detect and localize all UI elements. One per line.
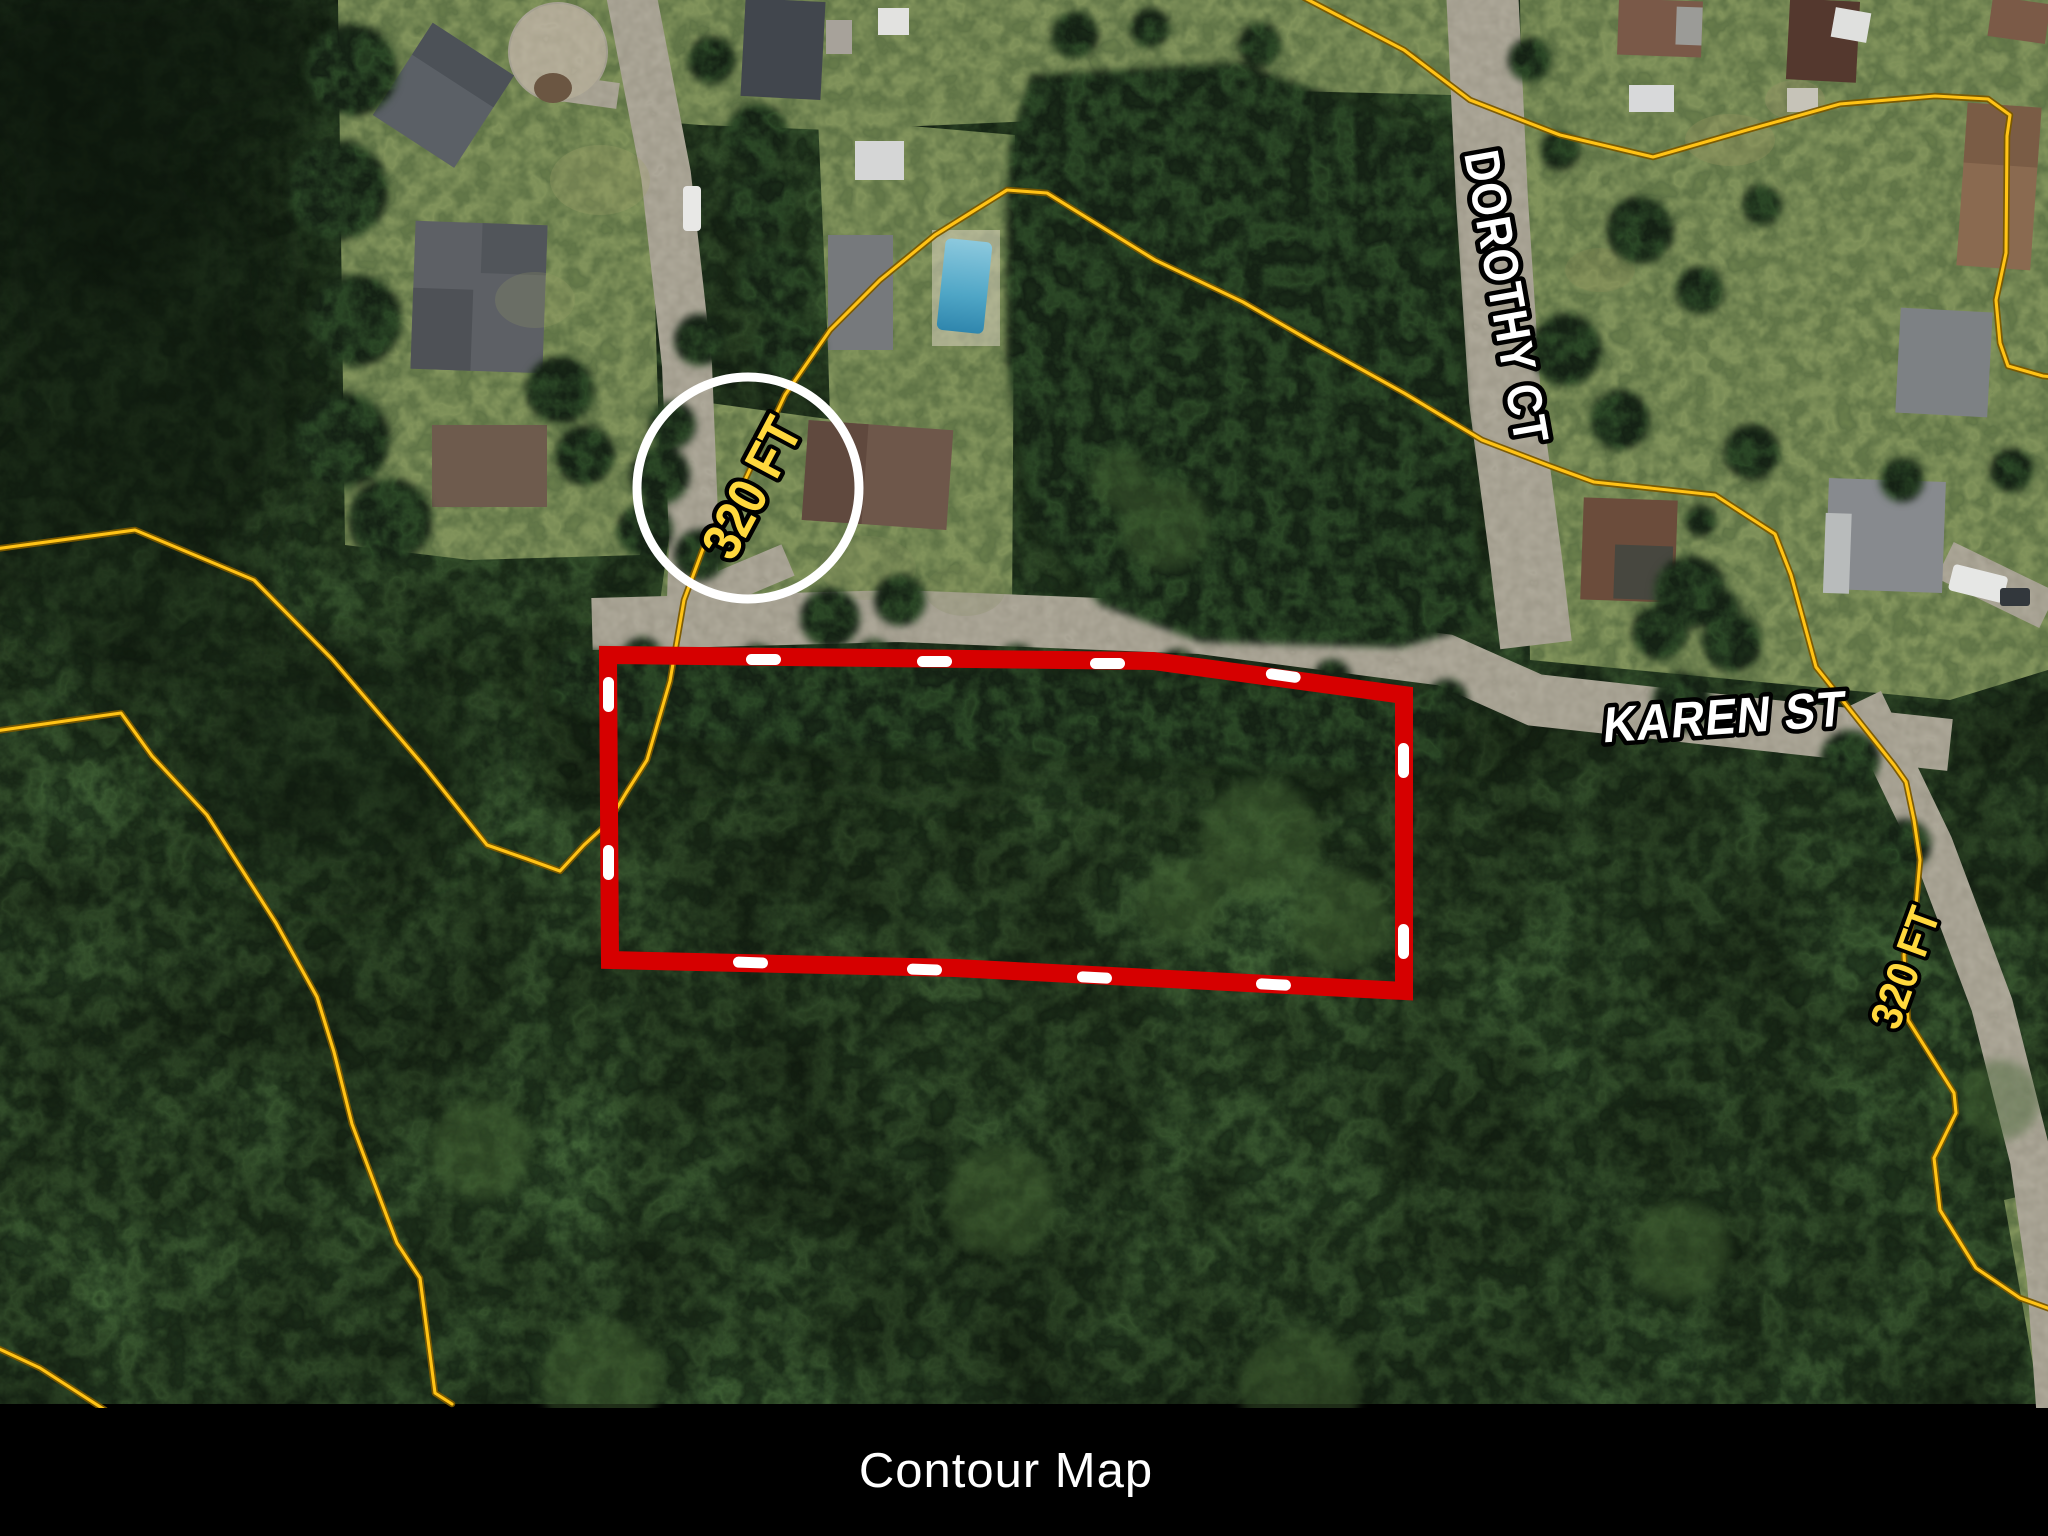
svg-text:Contour Map: Contour Map	[859, 1444, 1153, 1498]
